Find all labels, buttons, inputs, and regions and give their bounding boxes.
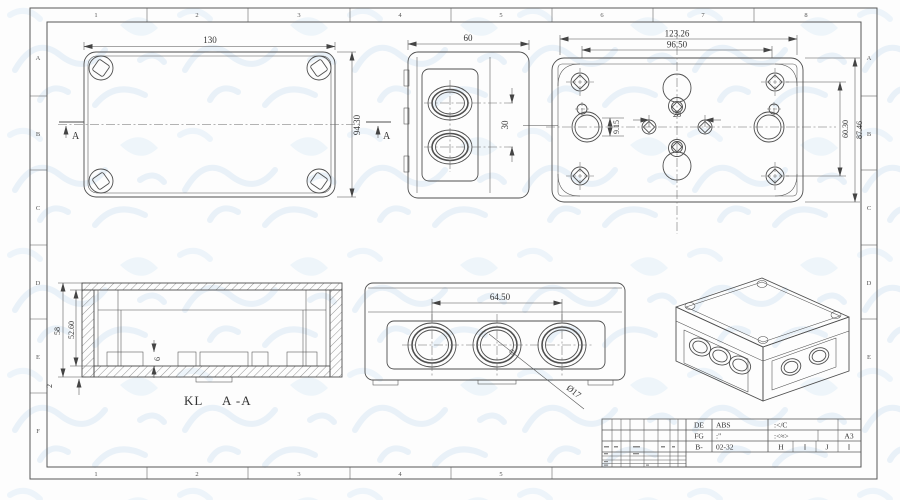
watermark-pattern [0,0,900,500]
zone-bottom-5: 5 [499,471,502,478]
dim-side-pitch: 30 [500,120,510,130]
dim-section-rib: 6 [153,357,162,361]
section-letter-left: A [72,131,80,142]
tb-sheet-size: A3 [844,432,853,441]
zone-left-d: D [36,280,41,287]
zone-bottom-3: 3 [297,471,300,478]
section-label-name: A -A [222,393,252,408]
drawing-sheet: 1 2 3 4 5 6 7 8 1 2 3 4 5 A B C D E F A … [0,0,900,500]
section-right-wall [330,290,342,377]
tb-r3c1: B- [695,443,703,452]
tb-r2c3: :<≈> [774,432,789,441]
section-letter-right: A [383,131,391,142]
tb-r1c1: DE [694,421,704,430]
zone-left-a: A [36,55,41,62]
zone-top-5: 5 [499,12,502,19]
dim-back-screw-height: 60.30 [841,120,850,138]
dim-back-overall-height: 87.46 [855,121,864,139]
section-label-prefix: KL [184,393,203,408]
dim-back-screws: 96.50 [667,40,688,50]
zone-left-b: B [36,131,41,138]
zone-top-8: 8 [804,12,807,19]
dim-section-height: 58 [53,327,62,335]
tb-r1c2: ABS [716,421,731,430]
tb-r3c5: J [826,443,829,452]
zone-right-e: E [867,354,871,361]
dim-section-wall: 2 [45,384,54,388]
zone-left-f: F [36,428,40,435]
section-left-wall [82,290,94,377]
zone-left-e: E [36,354,40,361]
dim-back-overall: 123.26 [665,29,690,39]
dim-side-width: 60 [464,33,474,43]
zone-top-1: 1 [94,12,97,19]
section-lid-slab [82,283,342,290]
dim-front-pitch: 64.50 [490,292,511,302]
zone-top-3: 3 [297,12,300,19]
zone-right-b: B [867,131,872,138]
dim-back-pitch: 28 [673,110,681,119]
dim-top-height: 94.30 [352,114,362,135]
tb-drawing-no: 02-32 [716,443,734,452]
tb-r2c1: FG [694,432,704,441]
zone-bottom-2: 2 [195,471,198,478]
zone-right-c: C [867,205,871,212]
zone-right-d: D [867,280,872,287]
dim-section-inner-height: 52.60 [67,321,76,339]
zone-left-c: C [36,205,40,212]
zone-right-a: A [867,55,872,62]
tb-r2c2: :" [716,432,721,441]
section-bottom-slab [94,366,330,377]
dim-top-width: 130 [203,35,217,45]
tb-r1c3: :</C [774,421,787,430]
dim-back-offset: 9.15 [612,120,621,134]
zone-bottom-1: 1 [94,471,97,478]
zone-top-2: 2 [195,12,198,19]
tb-r3c3: H [778,443,784,452]
